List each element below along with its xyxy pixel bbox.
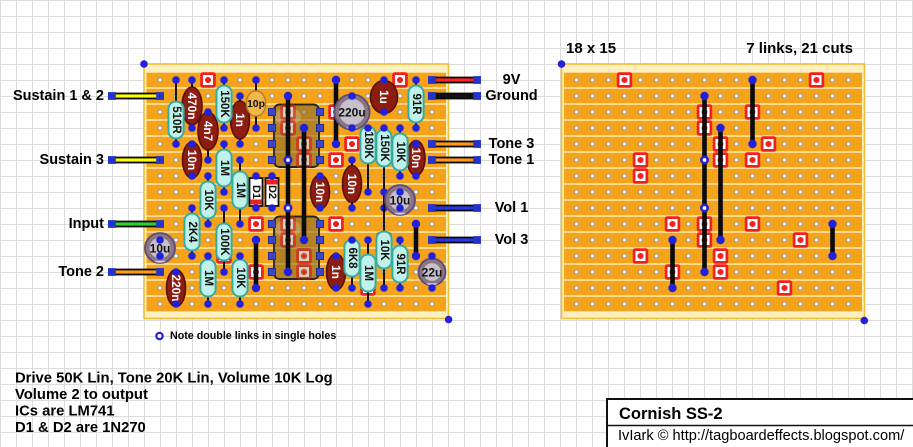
svg-text:10p: 10p <box>247 98 265 110</box>
svg-text:510R: 510R <box>170 106 182 134</box>
svg-text:Tone 2: Tone 2 <box>58 264 104 280</box>
svg-text:220u: 220u <box>338 106 365 120</box>
svg-text:Vol 1: Vol 1 <box>495 200 529 216</box>
svg-text:ICs are LM741: ICs are LM741 <box>15 404 115 420</box>
svg-text:1M: 1M <box>218 160 230 176</box>
svg-text:Drive 50K Lin, Tone 20K Lin, V: Drive 50K Lin, Tone 20K Lin, Volume 10K … <box>15 371 333 387</box>
svg-text:2K4: 2K4 <box>186 221 198 243</box>
svg-text:1n: 1n <box>329 265 343 279</box>
svg-text:10K: 10K <box>202 189 214 211</box>
svg-text:10n: 10n <box>185 150 199 170</box>
svg-text:180K: 180K <box>362 131 374 159</box>
svg-text:Input: Input <box>69 216 105 232</box>
svg-text:150K: 150K <box>218 90 230 118</box>
svg-text:1u: 1u <box>377 90 391 104</box>
svg-text:10K: 10K <box>378 239 390 261</box>
svg-text:22u: 22u <box>422 266 443 280</box>
svg-text:9V: 9V <box>503 72 521 88</box>
svg-text:D1: D1 <box>250 185 262 199</box>
svg-text:Cornish SS-2: Cornish SS-2 <box>619 405 723 423</box>
svg-text:Sustain 3: Sustain 3 <box>40 152 104 168</box>
svg-text:IvIark © http://tagboardeffect: IvIark © http://tagboardeffects.blogspot… <box>618 428 905 444</box>
svg-text:470n: 470n <box>185 93 199 120</box>
svg-text:1M: 1M <box>362 265 374 281</box>
svg-text:Vol 3: Vol 3 <box>495 232 529 248</box>
svg-text:6K8: 6K8 <box>346 247 358 269</box>
svg-text:91R: 91R <box>410 93 422 115</box>
svg-text:Tone 3: Tone 3 <box>489 136 535 152</box>
svg-text:18 x 15: 18 x 15 <box>566 40 616 57</box>
svg-text:10K: 10K <box>234 267 246 289</box>
svg-text:Ground: Ground <box>485 88 537 104</box>
svg-text:10K: 10K <box>394 141 406 163</box>
svg-text:1M: 1M <box>202 270 214 286</box>
svg-text:10n: 10n <box>409 148 423 168</box>
svg-text:D1 & D2 are 1N270: D1 & D2 are 1N270 <box>15 420 146 436</box>
svg-text:Note double links in single ho: Note double links in single holes <box>170 330 336 342</box>
svg-text:7 links, 21 cuts: 7 links, 21 cuts <box>746 40 853 57</box>
svg-text:91R: 91R <box>394 253 406 275</box>
svg-text:1M: 1M <box>234 182 246 198</box>
svg-text:D2: D2 <box>266 185 278 199</box>
svg-text:150K: 150K <box>378 134 390 162</box>
svg-text:1n: 1n <box>233 113 247 127</box>
svg-text:220n: 220n <box>169 275 183 302</box>
svg-text:4n7: 4n7 <box>201 121 215 142</box>
svg-text:10n: 10n <box>313 182 327 202</box>
svg-text:10n: 10n <box>345 174 359 194</box>
svg-text:Sustain 1 & 2: Sustain 1 & 2 <box>13 88 104 104</box>
svg-text:Tone 1: Tone 1 <box>489 152 535 168</box>
svg-text:Volume 2 to output: Volume 2 to output <box>15 387 148 403</box>
svg-text:100K: 100K <box>218 228 230 256</box>
